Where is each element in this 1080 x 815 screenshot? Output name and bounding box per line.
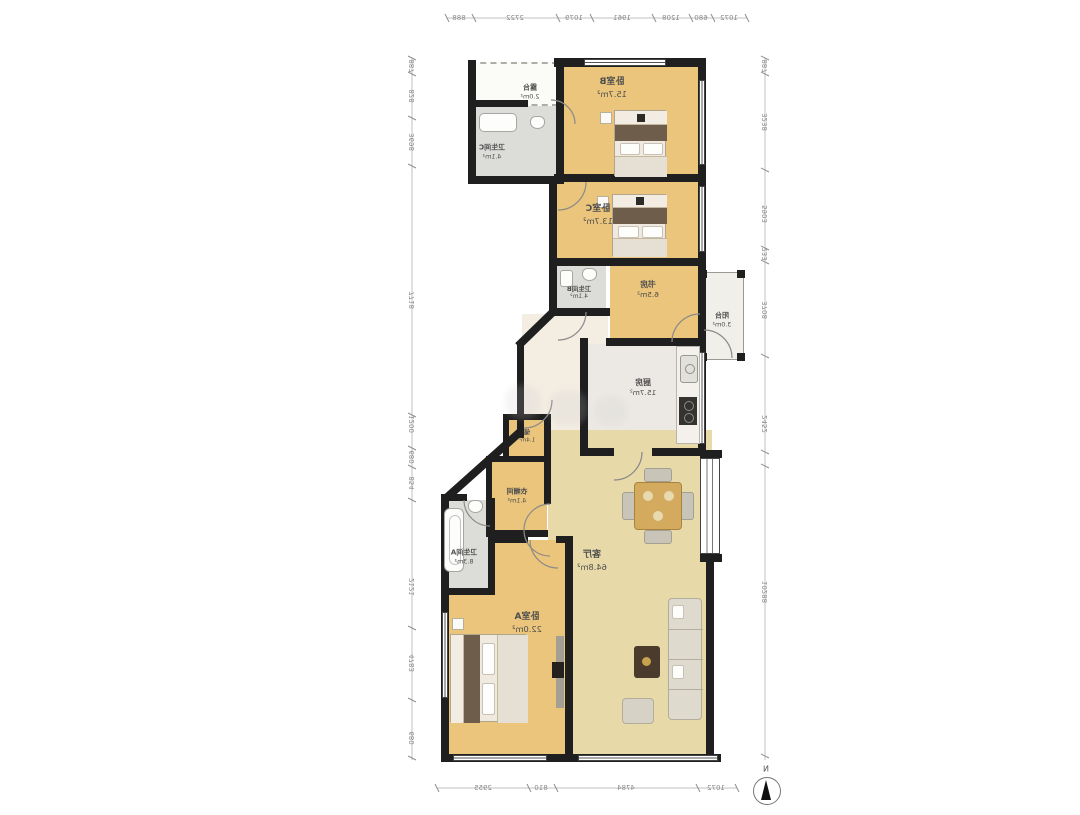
dining-table [634, 482, 682, 530]
sofa-cushion-line [669, 659, 703, 660]
room-name: 客厅 [583, 550, 601, 562]
watermark [548, 390, 588, 426]
room-area: 1.4m² [519, 437, 535, 444]
balcony-post [699, 270, 707, 278]
window [442, 612, 448, 698]
bed-blanket [615, 156, 667, 177]
armchair [622, 698, 654, 724]
dimension-label: 1200 [408, 415, 416, 433]
room-name: 衣帽间 [507, 487, 528, 496]
dimension-label: 1072 [707, 784, 725, 792]
room-label-kitchen: 厨房 15.7m² [630, 378, 657, 398]
room-name: 卧室C [586, 204, 611, 216]
plate [664, 491, 674, 501]
dimension-label: 1961 [613, 14, 631, 22]
dimension-label: 828 [408, 89, 416, 102]
room-area: 4.1m² [482, 152, 501, 160]
plate [653, 511, 663, 521]
dimension-label: 233 [761, 247, 769, 260]
dimension-label: 680 [694, 14, 707, 22]
wall-segment [468, 60, 476, 182]
window [699, 186, 705, 252]
wall-segment [503, 414, 509, 460]
room-area: 64.8m² [577, 561, 607, 572]
window [578, 755, 718, 761]
dimension-label: 2955 [474, 784, 492, 792]
room-label-bedA: 卧室A 22.0m² [512, 612, 542, 634]
wall-segment [441, 494, 467, 501]
dimension-label: 854 [408, 476, 416, 489]
window [453, 755, 547, 761]
coffee-table [634, 646, 660, 678]
dimension-label: 810 [534, 784, 547, 792]
wall-segment [468, 100, 528, 107]
room-area: 22.0m² [512, 623, 542, 634]
dimension-label: 1208 [662, 14, 680, 22]
dimension-label: 2452 [761, 415, 769, 433]
plate [643, 491, 653, 501]
table-decor [642, 657, 651, 666]
dimension-label: 887 [761, 59, 769, 72]
room-area: 3.0m² [712, 320, 731, 328]
wall-segment [486, 456, 550, 462]
dimension-label: 887 [408, 59, 416, 72]
bed-headboard [615, 125, 667, 141]
wall-segment [606, 338, 704, 346]
room-label-study: 书房 6.5m² [637, 280, 659, 300]
room-label-bathA: 卫生间A 8.3m² [451, 548, 477, 565]
wall-segment [554, 258, 704, 266]
room-name: 书房 [640, 280, 656, 290]
room-study-floor [610, 264, 702, 342]
bed-headboard [613, 208, 667, 224]
bed [612, 194, 666, 256]
room-area: 15.7m² [630, 388, 657, 398]
kitchen-counter [676, 346, 700, 444]
dimension-label: 10288 [761, 581, 769, 603]
dimension-label: 888 [452, 14, 465, 22]
wall-segment [441, 588, 495, 595]
wall-segment [652, 448, 706, 456]
wall-segment [706, 556, 714, 762]
kitchen-stove [679, 397, 697, 425]
dimension-label: 2722 [506, 14, 524, 22]
window [584, 59, 666, 66]
sofa-cushion-line [669, 629, 703, 630]
dimension-label: 5903 [761, 205, 769, 223]
burner [684, 401, 694, 411]
dining-chair [644, 468, 672, 482]
dimension-label: 1079 [565, 14, 583, 22]
bed-tv [637, 114, 645, 122]
bed [614, 110, 666, 176]
wall-segment [549, 176, 557, 316]
bed-panel [451, 635, 464, 723]
bed-blanket [497, 635, 528, 723]
room-area: 4.1m² [570, 293, 588, 301]
room-name: 卫生间A [451, 548, 477, 557]
room-name: 卫生间C [479, 143, 505, 152]
dimension-label: 4783 [408, 654, 416, 672]
dimension-label: 3708 [761, 301, 769, 319]
room-label-closet: 衣帽间 4.1m² [507, 487, 528, 504]
bed-blanket [613, 238, 667, 257]
room-name: 露台 [523, 83, 537, 92]
room-name: 储 [524, 430, 530, 438]
bay-window [700, 458, 720, 554]
room-label-terrace: 露台 2.0m² [520, 83, 539, 100]
room-name: 卧室A [515, 612, 540, 624]
wall-segment [495, 536, 528, 543]
room-name: 卫生间B [567, 285, 591, 293]
nightstand [452, 618, 464, 630]
dimension-label: 2121 [408, 578, 416, 596]
dimension-label: 3698 [408, 133, 416, 151]
wall-segment [565, 536, 573, 761]
wall-segment [556, 58, 564, 176]
kitchen-sink [680, 355, 698, 383]
room-label-bedB: 卧室B 15.7m² [597, 77, 627, 99]
bed-headboard [464, 635, 480, 723]
toilet [530, 116, 545, 129]
wall-segment [700, 450, 722, 458]
room-area: 15.7m² [597, 88, 627, 99]
dining-chair [644, 530, 672, 544]
wall-segment [544, 414, 551, 504]
watermark [505, 385, 541, 419]
dimension-label: 680 [408, 731, 416, 744]
room-label-bedC: 卧室C 13.7m² [583, 204, 613, 226]
dining-chair [680, 492, 694, 520]
window [699, 80, 705, 165]
room-area: 4.1m² [507, 496, 526, 504]
wall-segment [488, 498, 495, 594]
wall-segment [584, 448, 614, 456]
bed [450, 634, 526, 722]
toilet [468, 500, 483, 513]
room-area: 8.3m² [454, 557, 473, 565]
sink-drain [685, 364, 695, 374]
room-area: 13.7m² [583, 215, 613, 226]
wall-segment [552, 308, 610, 316]
compass-north-label: N [763, 765, 769, 774]
room-name: 卧室B [600, 77, 625, 89]
balcony-post [737, 270, 745, 278]
room-label-storage: 储 1.4m² [519, 430, 535, 445]
bathtub [479, 113, 517, 132]
burner [684, 413, 694, 423]
room-label-bathB: 卫生间B 4.1m² [567, 285, 591, 301]
bed-tv [636, 197, 644, 205]
dimension-label: 680 [408, 450, 416, 463]
room-area: 2.0m² [520, 92, 539, 100]
sofa [668, 598, 702, 720]
nightstand [600, 112, 612, 124]
room-name: 厨房 [635, 378, 651, 388]
tv [552, 662, 564, 678]
watermark [594, 396, 628, 426]
balcony-post [737, 353, 745, 361]
sofa-cushion-line [669, 689, 703, 690]
dimension-label: 3238 [761, 113, 769, 131]
compass-needle-icon [761, 780, 771, 800]
room-label-bathC: 卫生间C 4.1m² [479, 143, 505, 160]
dimension-label: 7718 [408, 291, 416, 309]
room-label-balcony: 阳台 3.0m² [712, 311, 731, 328]
toilet [582, 268, 597, 281]
dimension-label: 4784 [617, 784, 635, 792]
room-label-living: 客厅 64.8m² [577, 550, 607, 572]
floor-plan: 露台 2.0m² 卫生间C 4.1m² 卧室B 15.7m² 卧室C 13.7m… [0, 0, 1080, 815]
room-name: 阳台 [715, 311, 729, 320]
dimension-label: 1072 [720, 14, 738, 22]
room-area: 6.5m² [637, 290, 659, 300]
